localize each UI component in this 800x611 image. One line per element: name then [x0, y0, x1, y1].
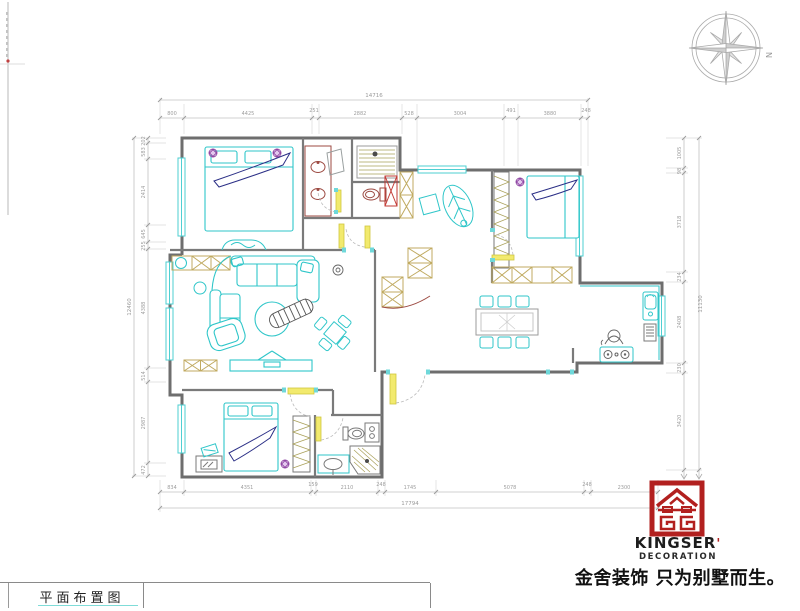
- svg-text:230: 230: [677, 363, 683, 373]
- side-table-round-icon: [194, 282, 206, 294]
- dimension-bottom: 834 4351 159 2110 248 1745 5078 248 2300…: [158, 482, 660, 510]
- water-heater-icon: [365, 423, 379, 442]
- ceiling-fan-icon: [333, 265, 343, 275]
- svg-text:3880: 3880: [544, 111, 557, 117]
- frame-left-ticks: [0, 12, 25, 64]
- dining-area: [476, 296, 538, 348]
- compass-north-label: N: [764, 52, 773, 58]
- bedroom-bottom: [196, 388, 314, 472]
- compass-rose-icon: [689, 11, 763, 85]
- shaft-L-tan: [382, 248, 432, 307]
- svg-text:1745: 1745: [404, 485, 417, 491]
- shower-drain-icon: [373, 152, 378, 157]
- svg-text:17794: 17794: [401, 501, 419, 507]
- cook-figure-icon: [601, 330, 623, 345]
- washing-machine-icon: [176, 258, 187, 269]
- svg-text:159: 159: [308, 482, 318, 488]
- bathroom3-door: [316, 417, 343, 441]
- bedroom1-door: [346, 226, 370, 248]
- svg-text:2987: 2987: [141, 417, 147, 430]
- toilet-top-icon: [363, 188, 386, 201]
- svg-text:248: 248: [376, 482, 386, 488]
- svg-text:528: 528: [404, 111, 414, 117]
- svg-text:472: 472: [141, 465, 147, 475]
- svg-text:834: 834: [167, 485, 177, 491]
- svg-text:514: 514: [141, 371, 147, 381]
- kitchen: [580, 286, 659, 362]
- plant-chaise-icon: [437, 181, 479, 232]
- floor-plan-page: { "title_block": { "label": "平面布置图" }, "…: [0, 0, 800, 607]
- svg-text:2408: 2408: [677, 316, 683, 329]
- svg-text:491: 491: [506, 108, 516, 114]
- dimension-top: 14716 800 4425 251 2882 528 3004 491 388…: [158, 93, 591, 120]
- toilet-bottom-icon: [343, 427, 364, 440]
- svg-text:4425: 4425: [242, 111, 255, 117]
- svg-text:4351: 4351: [241, 485, 254, 491]
- bedroom-top-right: [492, 172, 579, 283]
- bed-icon: [224, 403, 278, 471]
- window-hall-top: [418, 166, 466, 173]
- title-block-divider: [143, 583, 144, 608]
- title-block-left-line: [8, 583, 9, 608]
- title-block: 平面布置图: [0, 582, 430, 608]
- brand-slogan: 金舍装饰 只为别墅而生。: [560, 564, 800, 590]
- svg-text:3718: 3718: [677, 216, 683, 229]
- svg-text:255: 255: [141, 241, 147, 251]
- ceiling-marker-icon: [281, 460, 289, 468]
- svg-text:3420: 3420: [677, 415, 683, 428]
- shower-drain-icon: [365, 459, 369, 463]
- svg-text:5078: 5078: [504, 485, 517, 491]
- shower-corner: [350, 446, 380, 474]
- svg-text:98: 98: [677, 168, 683, 174]
- vanity-mirror: [327, 149, 344, 175]
- svg-text:645: 645: [141, 229, 147, 239]
- shaft-tan: [400, 172, 413, 218]
- title-block-end-line: [430, 583, 431, 608]
- svg-text:234: 234: [677, 272, 683, 282]
- drawing-title: 平面布置图: [24, 587, 140, 606]
- svg-text:11130: 11130: [698, 295, 704, 313]
- window-bedroom3-left: [178, 405, 185, 453]
- wardrobe-strip: [293, 416, 310, 472]
- square-table-icon: [307, 305, 361, 359]
- dimension-right: 1005 98 3718 234 2408 230 3420 11130: [677, 136, 704, 479]
- svg-text:14716: 14716: [365, 93, 383, 99]
- svg-text:248: 248: [581, 108, 591, 114]
- window-bedroom1-left: [178, 158, 185, 236]
- svg-text:800: 800: [167, 111, 177, 117]
- kingser-logo-block: KINGSER' DECORATION: [612, 476, 744, 562]
- kitchen-sink-icon: [643, 292, 658, 320]
- bed-icon: [205, 147, 293, 231]
- svg-text:2882: 2882: [354, 111, 367, 117]
- brand-apostrophe: ': [716, 537, 721, 552]
- bedroom3-door: [288, 388, 314, 417]
- entry-hall: [339, 181, 479, 309]
- svg-text:4388: 4388: [141, 302, 147, 315]
- svg-text:1005: 1005: [677, 147, 683, 160]
- duct-red: [385, 176, 397, 206]
- bedroom-top-left: [205, 147, 370, 250]
- bathroom-bottom: [316, 417, 380, 475]
- brand-name: KINGSER': [635, 536, 722, 551]
- entry-door: [390, 374, 425, 404]
- ceiling-marker-icon: [516, 178, 524, 186]
- bed-icon: [527, 176, 579, 238]
- bathroom-door: [318, 190, 341, 212]
- svg-text:248: 248: [582, 482, 592, 488]
- dining-table-icon: [476, 309, 538, 335]
- bathroom-sink-icon: [318, 455, 349, 475]
- shower-room: [357, 146, 397, 178]
- dimension-left: 202 583 2414 645 255 4388 514 2987 472 1…: [127, 136, 150, 478]
- svg-text:3004: 3004: [454, 111, 467, 117]
- fridge-icon: [644, 324, 656, 341]
- tv-stand-icon: [196, 456, 222, 472]
- svg-text:583: 583: [141, 147, 147, 157]
- wardrobe-strip: [494, 172, 509, 268]
- coffee-table-icon: [255, 297, 315, 336]
- svg-text:251: 251: [309, 108, 319, 114]
- brand-subtitle: DECORATION: [639, 552, 717, 562]
- hall-door: [339, 224, 344, 248]
- svg-text:2110: 2110: [341, 485, 354, 491]
- side-table-icon: [419, 194, 440, 215]
- tv-wall-decor: [222, 240, 266, 250]
- svg-text:2414: 2414: [141, 186, 147, 199]
- title-underline: [38, 605, 138, 606]
- living-room: [172, 256, 425, 404]
- svg-text:12460: 12460: [127, 298, 133, 316]
- table-lamp-icon: [201, 444, 218, 457]
- shoe-cabinet: [184, 360, 217, 371]
- stove-icon: [600, 347, 633, 362]
- wardrobe-row: [492, 267, 572, 283]
- svg-text:202: 202: [141, 136, 147, 146]
- window-living-left-2: [166, 308, 173, 360]
- tv-cabinet-icon: [230, 351, 312, 371]
